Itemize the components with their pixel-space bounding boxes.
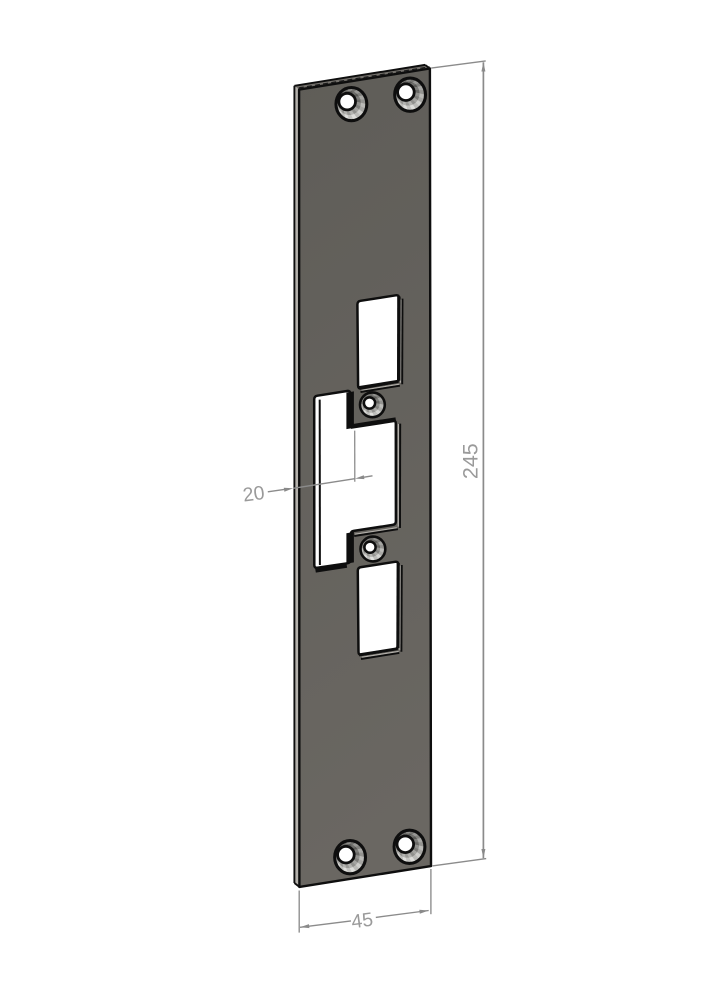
svg-text:245: 245 [459,443,483,479]
svg-text:20: 20 [241,482,266,507]
svg-text:45: 45 [350,909,375,934]
